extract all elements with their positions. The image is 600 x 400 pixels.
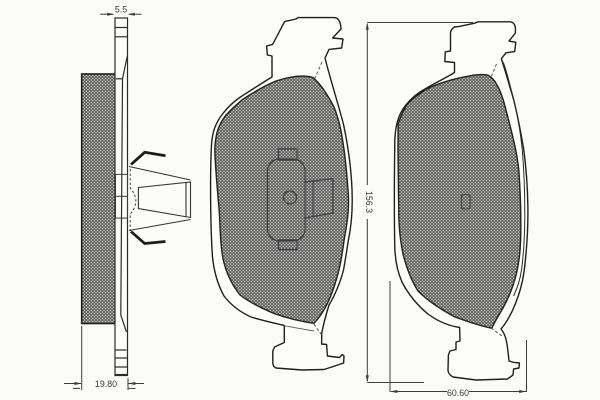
svg-text:60.60: 60.60	[447, 388, 469, 398]
svg-text:19.80: 19.80	[95, 379, 117, 389]
svg-text:156.3: 156.3	[364, 191, 374, 213]
svg-text:5.5: 5.5	[115, 5, 127, 15]
